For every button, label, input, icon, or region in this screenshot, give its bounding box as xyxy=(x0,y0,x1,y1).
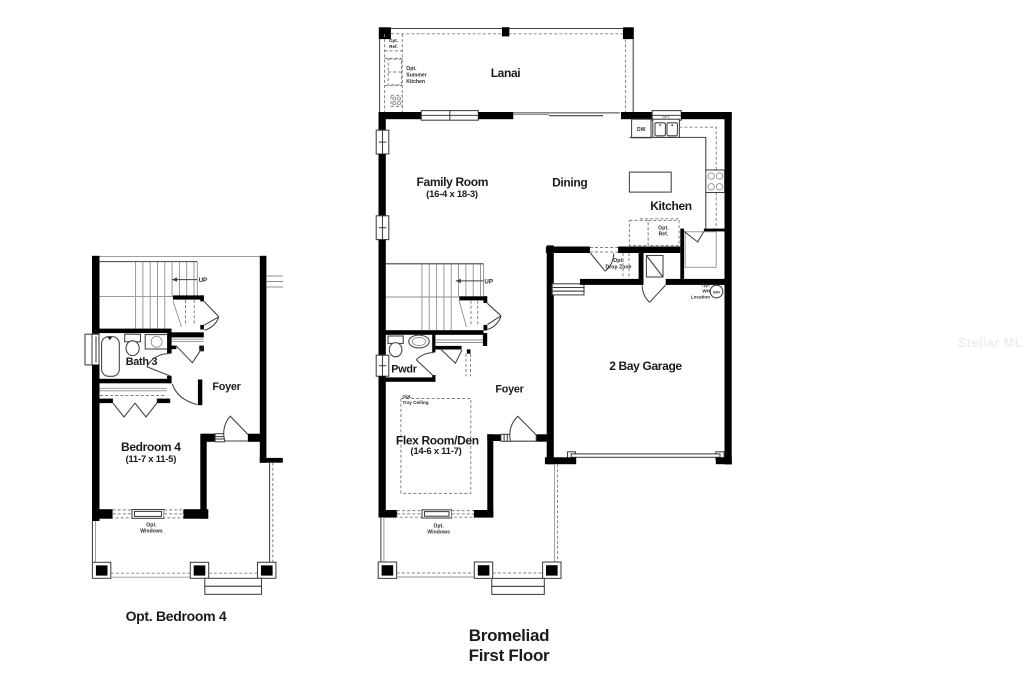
svg-text:Bedroom 4: Bedroom 4 xyxy=(121,440,181,454)
svg-text:(11-7 x 11-5): (11-7 x 11-5) xyxy=(125,454,176,465)
svg-text:Tray Ceiling: Tray Ceiling xyxy=(403,400,429,405)
svg-text:WH: WH xyxy=(713,289,720,294)
svg-text:(16-4 x 18-3): (16-4 x 18-3) xyxy=(426,189,478,200)
svg-text:Windows: Windows xyxy=(140,529,163,535)
svg-text:Lanai: Lanai xyxy=(491,66,521,80)
svg-text:Summer: Summer xyxy=(406,73,426,79)
svg-text:UP: UP xyxy=(484,278,493,285)
svg-text:Dining: Dining xyxy=(552,175,587,189)
svg-text:(14-6 x 11-7): (14-6 x 11-7) xyxy=(410,446,461,457)
svg-text:UP: UP xyxy=(199,277,208,284)
svg-text:WH: WH xyxy=(702,289,710,294)
svg-text:Kitchen: Kitchen xyxy=(406,79,425,85)
svg-text:Kitchen: Kitchen xyxy=(650,199,692,213)
svg-text:Ref.: Ref. xyxy=(659,232,669,238)
svg-text:OPT.: OPT. xyxy=(662,115,670,119)
svg-text:Opt. Bedroom 4: Opt. Bedroom 4 xyxy=(126,608,227,624)
svg-text:Bath 3: Bath 3 xyxy=(126,356,158,368)
svg-text:Drop Zone: Drop Zone xyxy=(606,264,632,270)
svg-text:Bromeliad: Bromeliad xyxy=(469,626,549,645)
svg-text:Location: Location xyxy=(691,295,710,300)
svg-text:Opt.: Opt. xyxy=(389,38,398,43)
svg-text:DW: DW xyxy=(637,127,646,133)
svg-text:Typ.: Typ. xyxy=(701,283,710,288)
svg-text:Foyer: Foyer xyxy=(495,384,524,396)
svg-text:Foyer: Foyer xyxy=(212,381,241,393)
svg-text:First Floor: First Floor xyxy=(469,646,550,665)
svg-text:Family Room: Family Room xyxy=(417,175,489,189)
svg-text:Opt.: Opt. xyxy=(403,394,412,399)
svg-text:Opt.: Opt. xyxy=(406,66,417,72)
svg-text:Pwdr: Pwdr xyxy=(391,364,417,376)
svg-text:Stellar MLS: Stellar MLS xyxy=(958,336,1024,350)
svg-text:2 Bay Garage: 2 Bay Garage xyxy=(609,359,682,373)
svg-text:Ref.: Ref. xyxy=(389,44,398,49)
svg-text:Windows: Windows xyxy=(427,529,450,535)
